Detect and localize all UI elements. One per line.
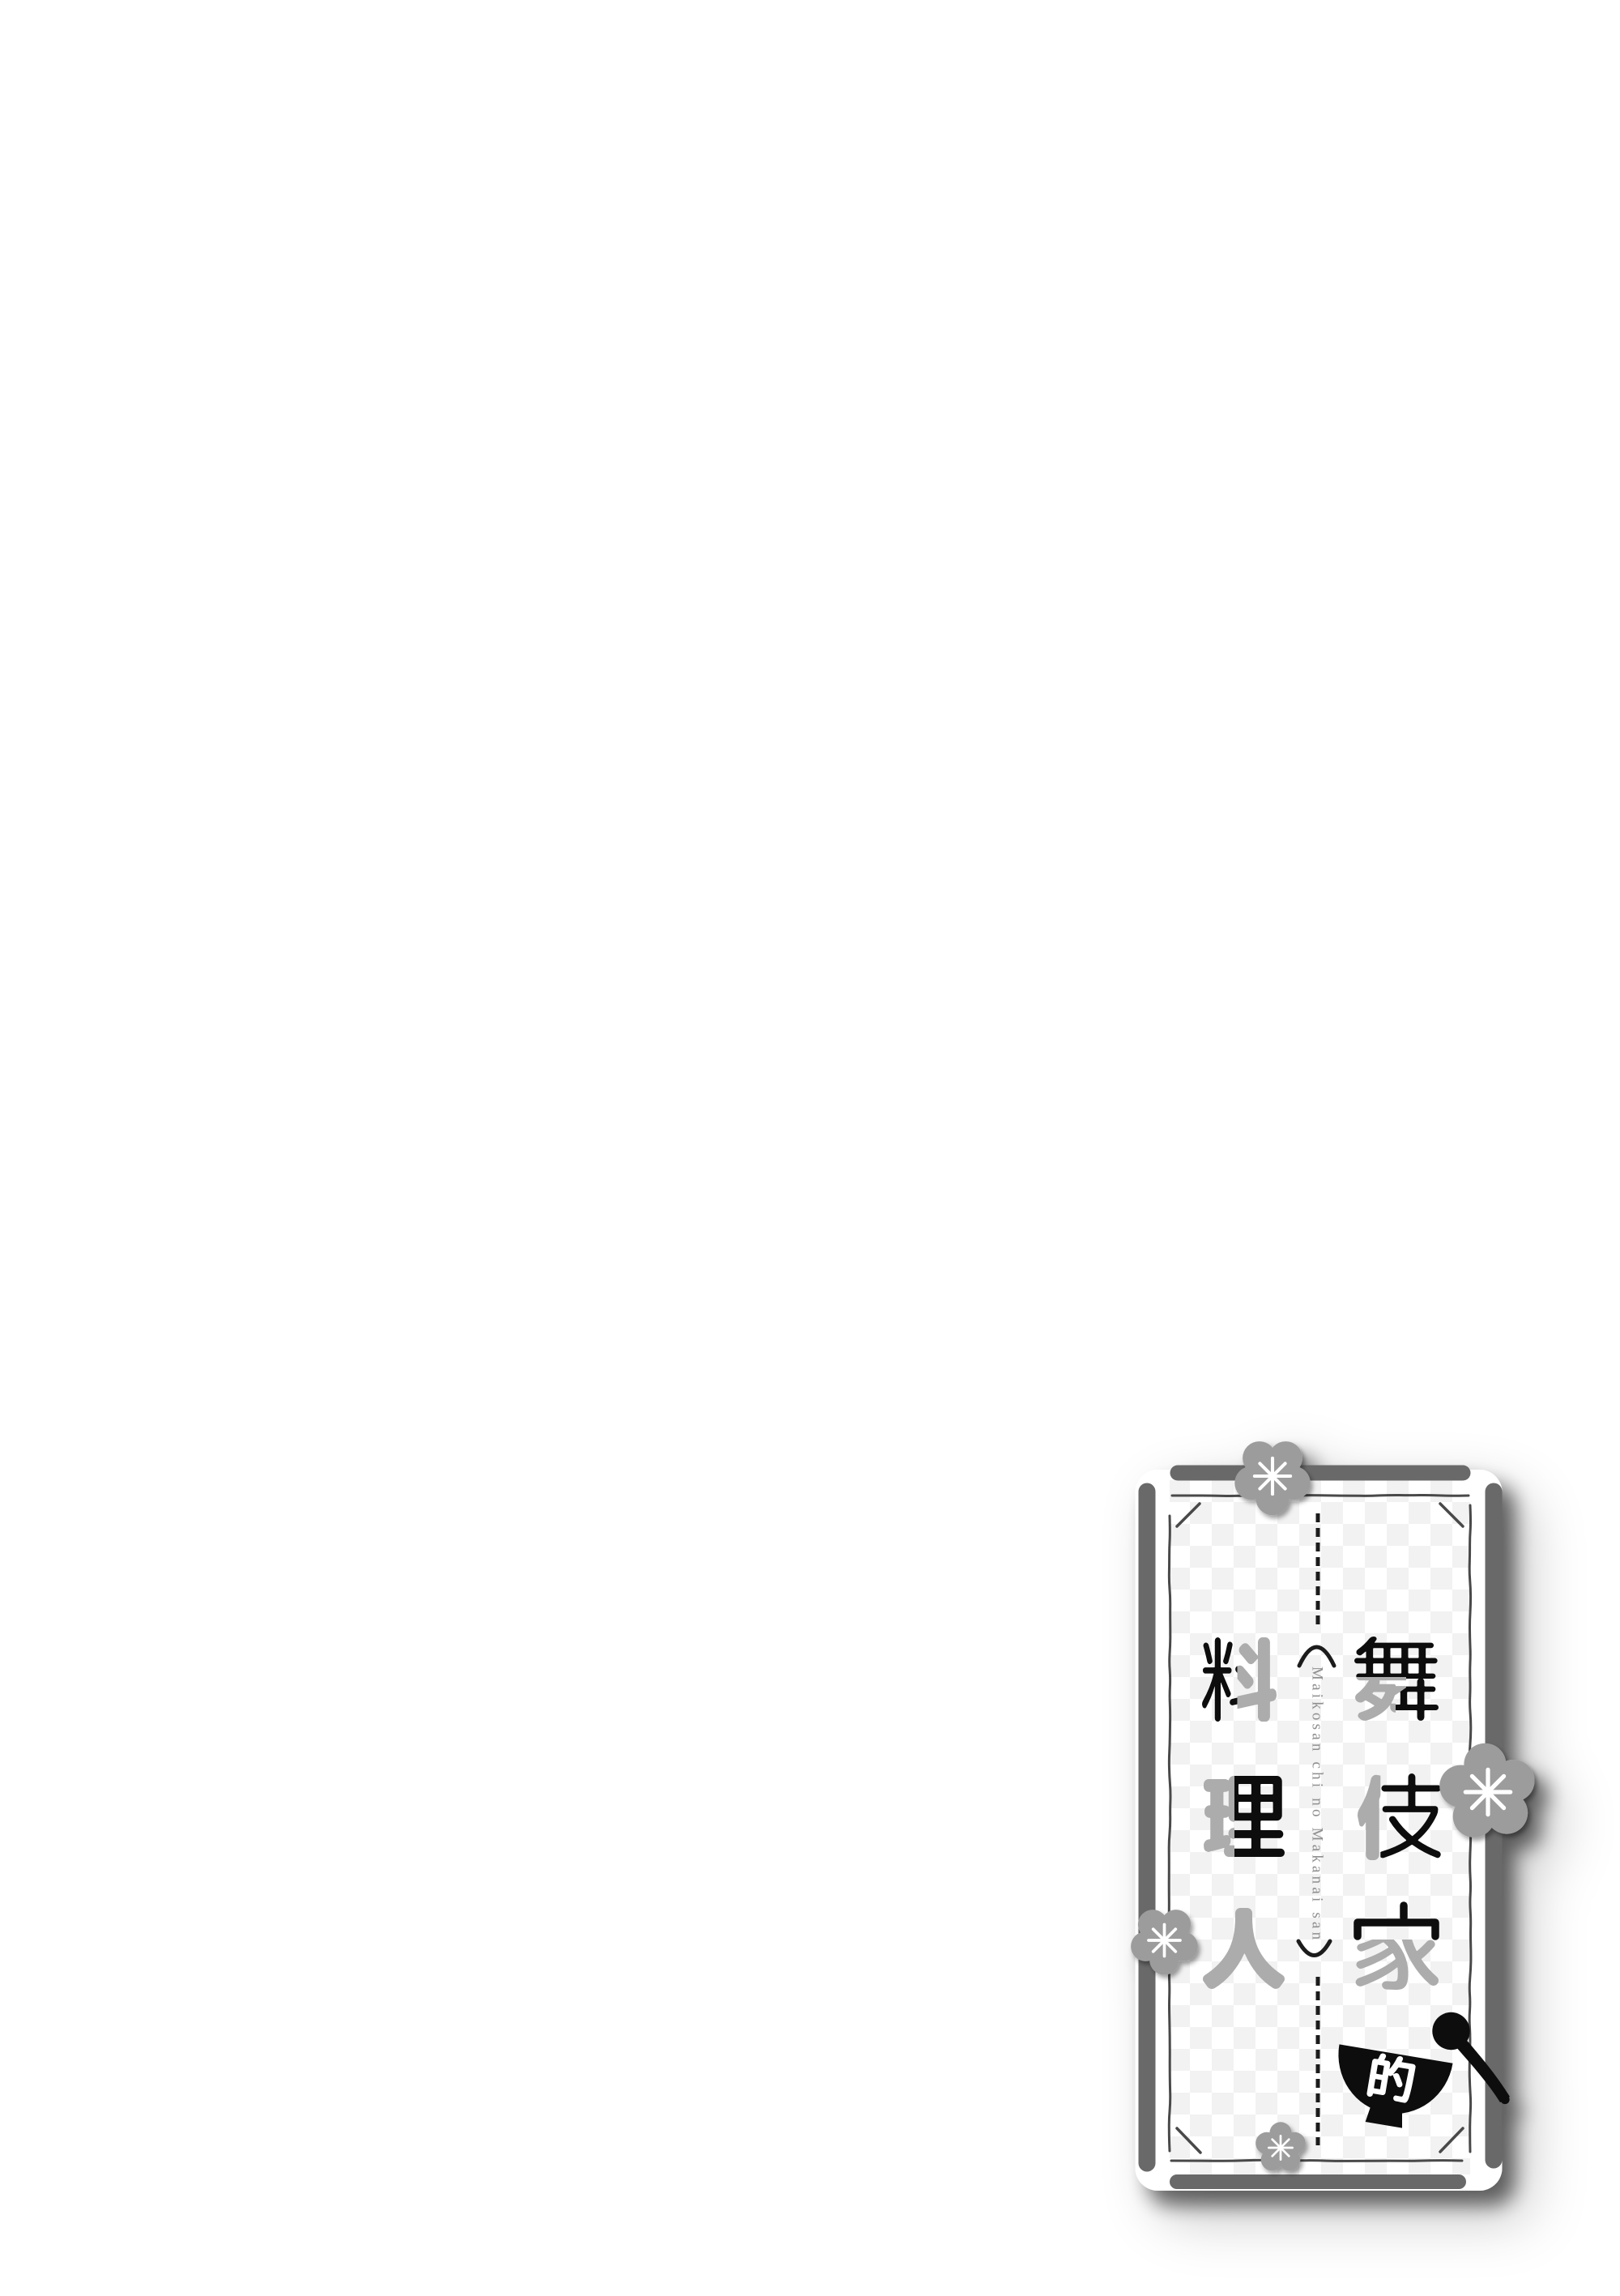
svg-text:Maikosan chi no Makanai san: Maikosan chi no Makanai san xyxy=(1309,1667,1326,1943)
